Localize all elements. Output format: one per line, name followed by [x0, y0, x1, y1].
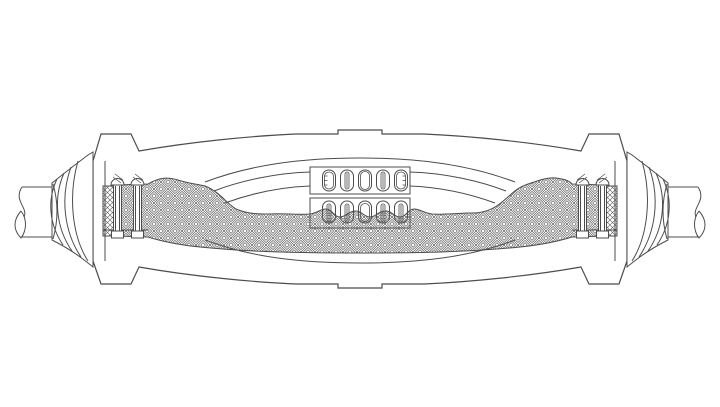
connector-block-upper: [310, 167, 410, 194]
cable-joint-drawing: [0, 0, 720, 407]
diagram-canvas: [0, 0, 720, 407]
drawing-root: [15, 130, 705, 288]
